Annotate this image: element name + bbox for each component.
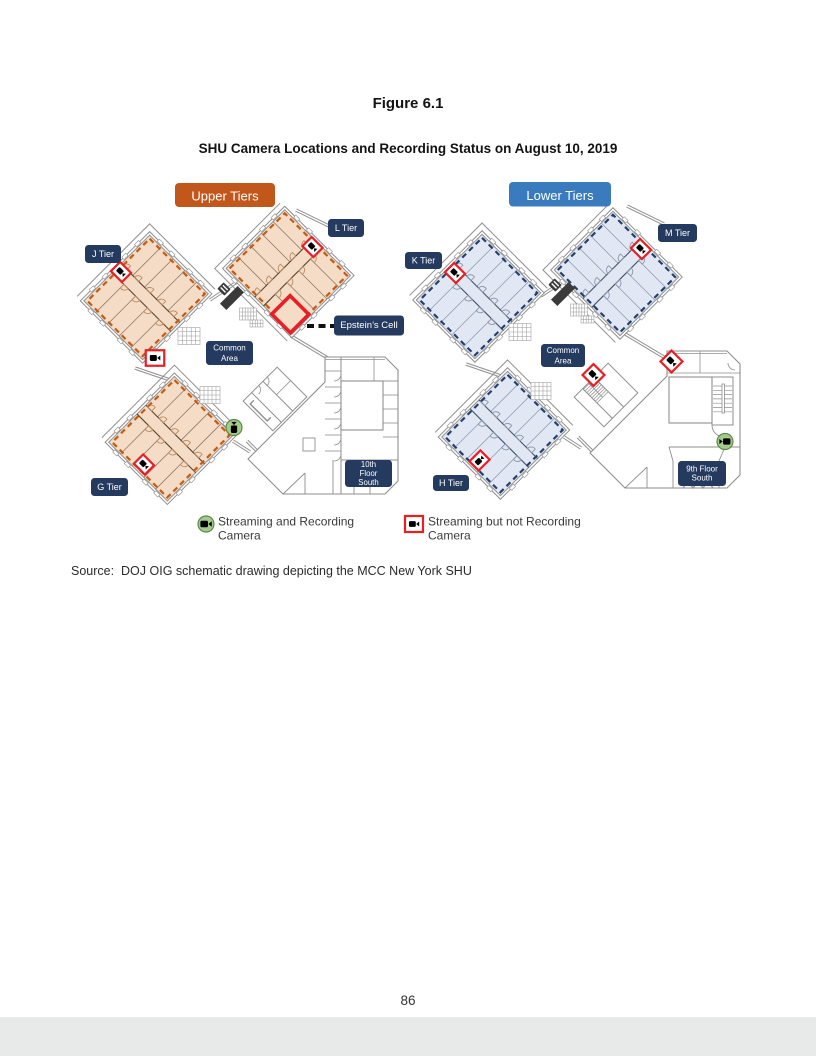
svg-text:M Tier: M Tier [665,228,690,238]
svg-text:South: South [692,474,713,483]
svg-text:Streaming but not Recording: Streaming but not Recording [428,515,581,529]
svg-text:Area: Area [221,354,238,363]
svg-text:Lower Tiers: Lower Tiers [526,188,594,203]
svg-text:H Tier: H Tier [439,478,463,488]
svg-text:10th: 10th [361,460,376,469]
svg-text:Common: Common [547,346,579,355]
svg-text:K Tier: K Tier [412,256,436,266]
svg-text:South: South [358,478,378,487]
svg-text:Floor: Floor [360,469,378,478]
svg-text:Streaming and Recording: Streaming and Recording [218,515,354,529]
svg-text:L Tier: L Tier [335,223,357,233]
svg-text:G Tier: G Tier [97,482,122,492]
svg-text:Epstein’s Cell: Epstein’s Cell [340,320,397,331]
svg-text:Common: Common [213,343,245,352]
svg-text:Upper Tiers: Upper Tiers [191,189,259,204]
svg-text:J Tier: J Tier [92,249,114,259]
svg-text:Area: Area [555,356,572,365]
svg-text:Camera: Camera [428,529,471,543]
svg-text:9th Floor: 9th Floor [686,464,718,473]
svg-text:Camera: Camera [218,529,261,543]
